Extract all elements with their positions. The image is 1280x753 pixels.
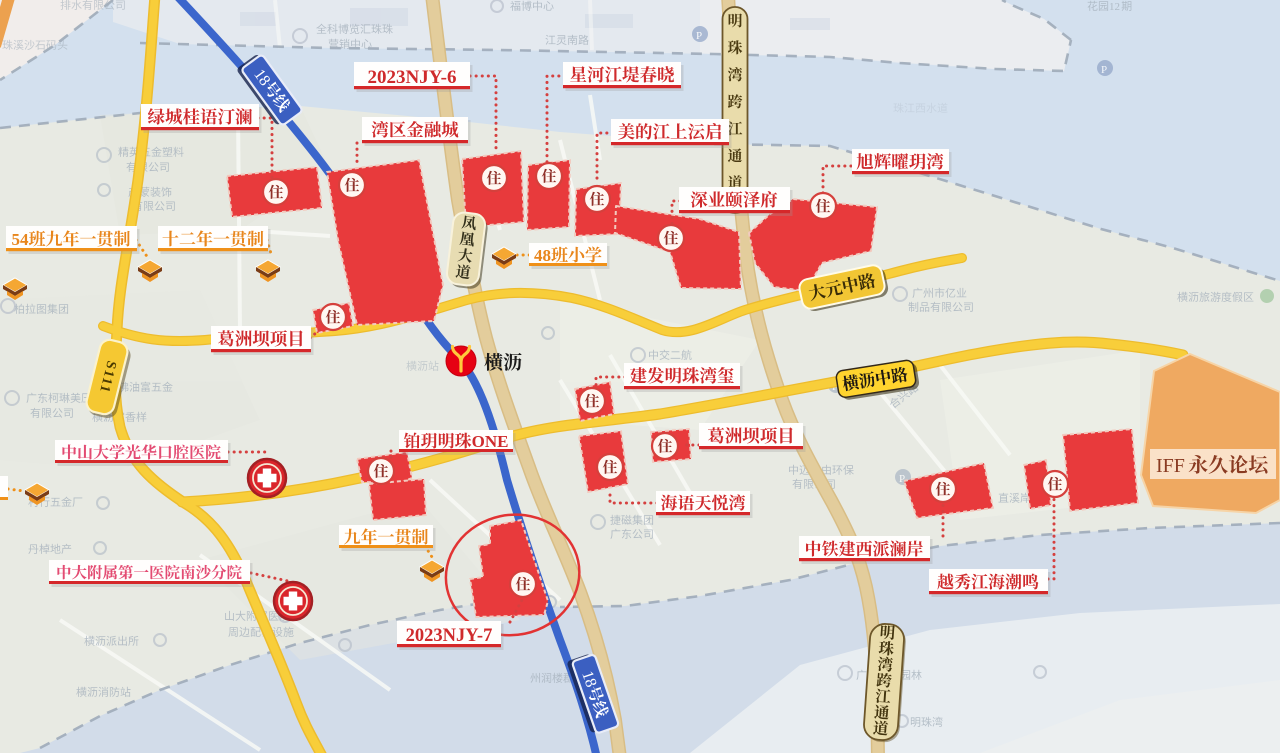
svg-text:12: 12: [1109, 1, 1120, 13]
svg-text:P: P: [1101, 64, 1107, 76]
svg-text:2023NJY-6: 2023NJY-6: [367, 67, 456, 88]
svg-text:P: P: [696, 30, 702, 42]
svg-text:48: 48: [534, 246, 551, 265]
svg-text:2023NJY-7: 2023NJY-7: [406, 626, 493, 646]
svg-text:54: 54: [12, 230, 30, 249]
svg-text:IFF: IFF: [1156, 455, 1185, 477]
svg-text:ONE: ONE: [472, 432, 509, 451]
